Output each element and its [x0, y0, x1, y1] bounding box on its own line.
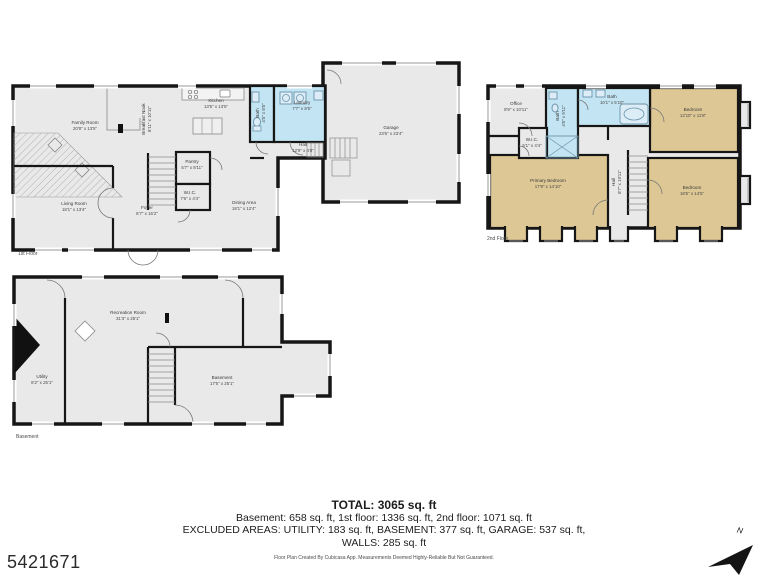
room-label-family-room: Family Room 20'8" x 13'5" [71, 120, 98, 132]
room-label-primary-bedroom: Primary Bedroom 17'9" x 14'10" [530, 178, 566, 190]
room-label-basement-room: Basement 17'5" x 25'1" [210, 375, 234, 387]
room-label-bath-2nd: Bath 10'1" x 5'10" [600, 94, 624, 106]
room-label-living-room: Living Room 18'1" x 13'4" [61, 201, 87, 213]
room-label-pantry: Pantry 5'7" x 8'11" [181, 159, 202, 171]
room-label-dining-area: Dining Area 18'1" x 12'4" [232, 200, 256, 212]
mls-number: 5421671 [7, 552, 81, 573]
room-label-wic-1st: W.I.C. 7'6" x 4'4" [180, 190, 199, 202]
room-label-breakfast-nook: Breakfast Nook 8'11" x 10'11" [141, 103, 153, 134]
floorplan-page: Family Room 20'8" x 13'5" Breakfast Nook… [0, 0, 768, 576]
room-label-hall-2nd: Hall 8'7" x 19'11" [611, 170, 623, 194]
walls-area: WALLS: 285 sq. ft [0, 537, 768, 549]
room-label-recreation-room: Recreation Room 31'3" x 25'1" [110, 310, 146, 322]
total-area: TOTAL: 3065 sq. ft [0, 499, 768, 512]
first-floor-drawing [10, 58, 470, 270]
room-label-hall-1st: Hall 12'9" x 4'8" [292, 142, 314, 154]
floor-caption-second: 2nd Floor [487, 236, 508, 242]
floor-caption-first: 1st Floor [18, 251, 37, 257]
room-label-office: Office 8'9" x 10'11" [504, 101, 528, 113]
room-label-laundry: Laundry 7'7" x 8'5" [292, 100, 311, 112]
room-label-wic-2nd: W.I.C. 5'1" x 4'4" [522, 137, 541, 149]
floor-caption-basement: Basement [16, 434, 39, 440]
room-label-utility: Utility 8'2" x 25'1" [31, 374, 53, 386]
excluded-areas: EXCLUDED AREAS: UTILITY: 183 sq. ft, BAS… [0, 524, 768, 536]
room-label-kitchen: Kitchen 13'5" x 13'5" [204, 98, 228, 110]
room-label-garage: Garage 23'6" x 23'4" [379, 125, 403, 137]
area-summary: TOTAL: 3065 sq. ft Basement: 658 sq. ft,… [0, 499, 768, 561]
basement-drawing [10, 272, 340, 432]
floor-areas: Basement: 658 sq. ft, 1st floor: 1336 sq… [0, 512, 768, 524]
room-label-foyer: Foyer 8'7" x 16'2" [136, 205, 158, 217]
room-label-bath-1st: Bath 4'5" x 8'5" [255, 103, 267, 122]
room-label-bedroom-front: Bedroom 12'10" x 11'8" [680, 107, 706, 119]
room-label-bedroom-rear: Bedroom 18'5" x 14'5" [680, 185, 704, 197]
disclaimer: Floor Plan Created By Cubicasa App. Meas… [0, 555, 768, 561]
north-arrow-icon [702, 528, 764, 576]
room-label-bath-small-2nd: Bath 4'5" x 9'11" [555, 105, 567, 126]
